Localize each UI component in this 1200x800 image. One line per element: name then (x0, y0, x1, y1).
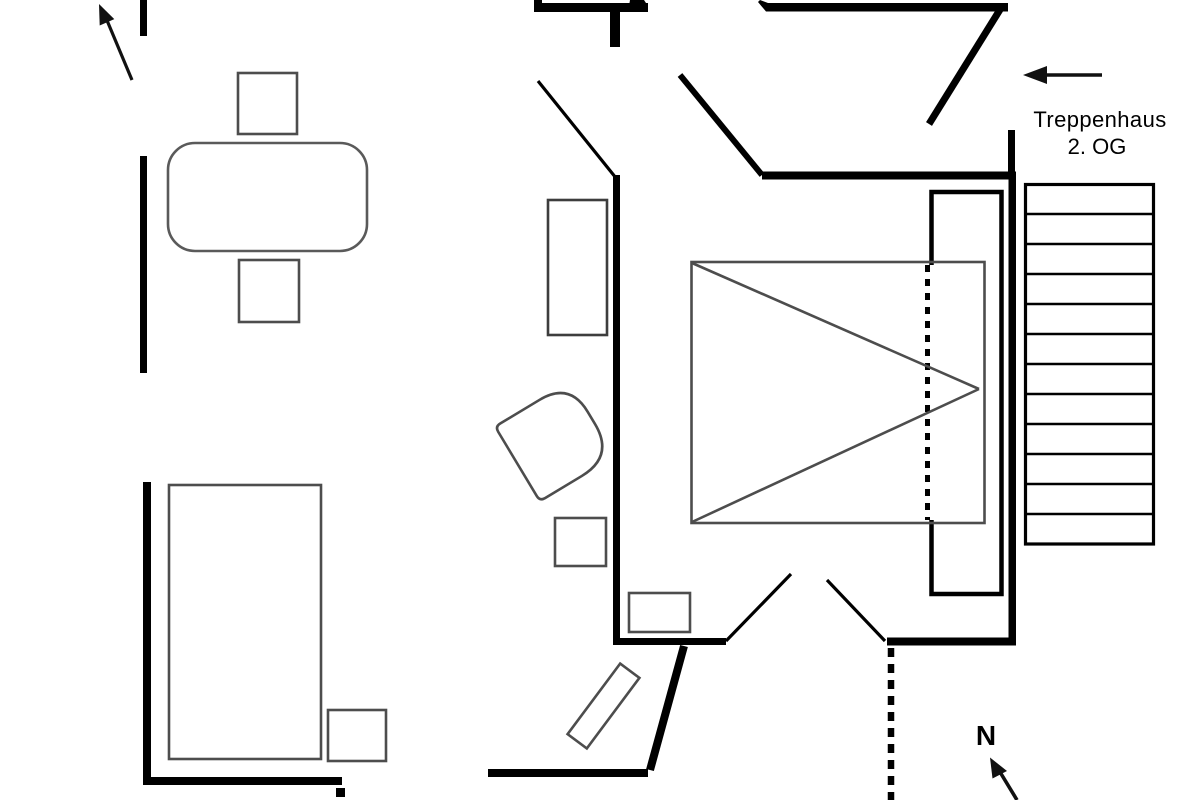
svg-text:N: N (976, 720, 996, 751)
svg-text:Treppenhaus: Treppenhaus (1033, 107, 1166, 132)
svg-text:2. OG: 2. OG (1068, 134, 1127, 159)
